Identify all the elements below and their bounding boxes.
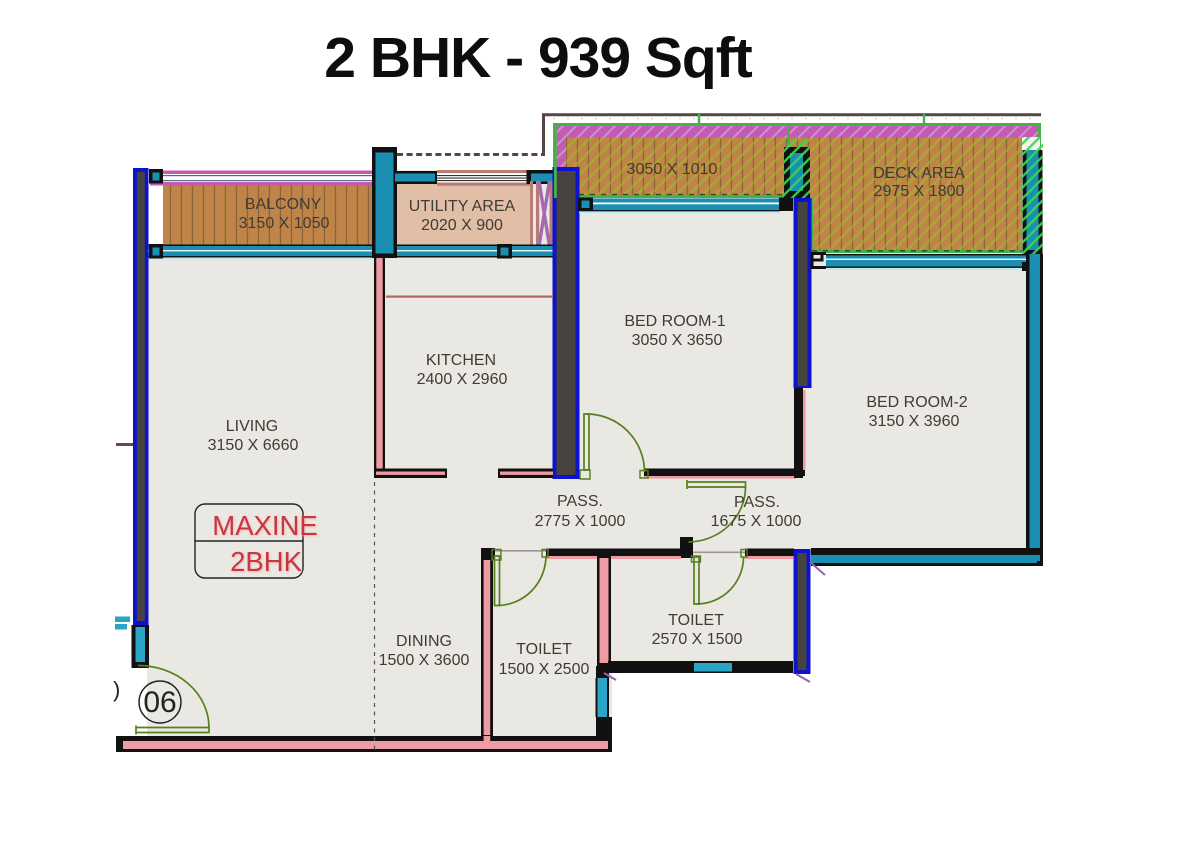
svg-text:3150 X 6660: 3150 X 6660 [208,437,299,454]
svg-text:3150 X 1050: 3150 X 1050 [239,215,330,232]
svg-text:1500 X 3600: 1500 X 3600 [379,652,470,669]
svg-text:3150 X 3960: 3150 X 3960 [869,413,960,430]
svg-text:TOILET: TOILET [516,641,572,658]
svg-text:MAXINE: MAXINE [212,510,317,541]
svg-text:2775 X 1000: 2775 X 1000 [535,513,626,530]
svg-text:DINING: DINING [396,633,452,650]
svg-text:3050 X 3650: 3050 X 3650 [632,332,723,349]
svg-text:BED ROOM-1: BED ROOM-1 [624,313,725,330]
svg-text:BED ROOM-2: BED ROOM-2 [866,394,967,411]
svg-text:PASS.: PASS. [557,493,603,510]
svg-text:3050 X 1010: 3050 X 1010 [627,161,718,178]
svg-text:TOILET: TOILET [668,612,724,629]
svg-text:2BHK: 2BHK [230,546,302,577]
svg-text:2975 X 1800: 2975 X 1800 [874,183,965,200]
svg-text:2570 X 1500: 2570 X 1500 [652,631,743,648]
svg-text:2400 X 2960: 2400 X 2960 [417,371,508,388]
svg-text:KITCHEN: KITCHEN [426,352,496,369]
svg-text:2020 X 900: 2020 X 900 [421,217,503,234]
svg-text:1500 X 2500: 1500 X 2500 [499,661,590,678]
svg-text:06: 06 [143,686,176,719]
svg-text:LIVING: LIVING [226,418,278,435]
svg-text:): ) [113,677,120,702]
svg-text:PASS.: PASS. [734,494,780,511]
svg-text:1675 X 1000: 1675 X 1000 [711,513,802,530]
svg-text:DECK AREA: DECK AREA [873,165,965,182]
svg-text:UTILITY AREA: UTILITY AREA [409,198,516,215]
svg-text:2 BHK - 939 Sqft: 2 BHK - 939 Sqft [324,26,752,90]
svg-text:BALCONY: BALCONY [245,196,322,213]
